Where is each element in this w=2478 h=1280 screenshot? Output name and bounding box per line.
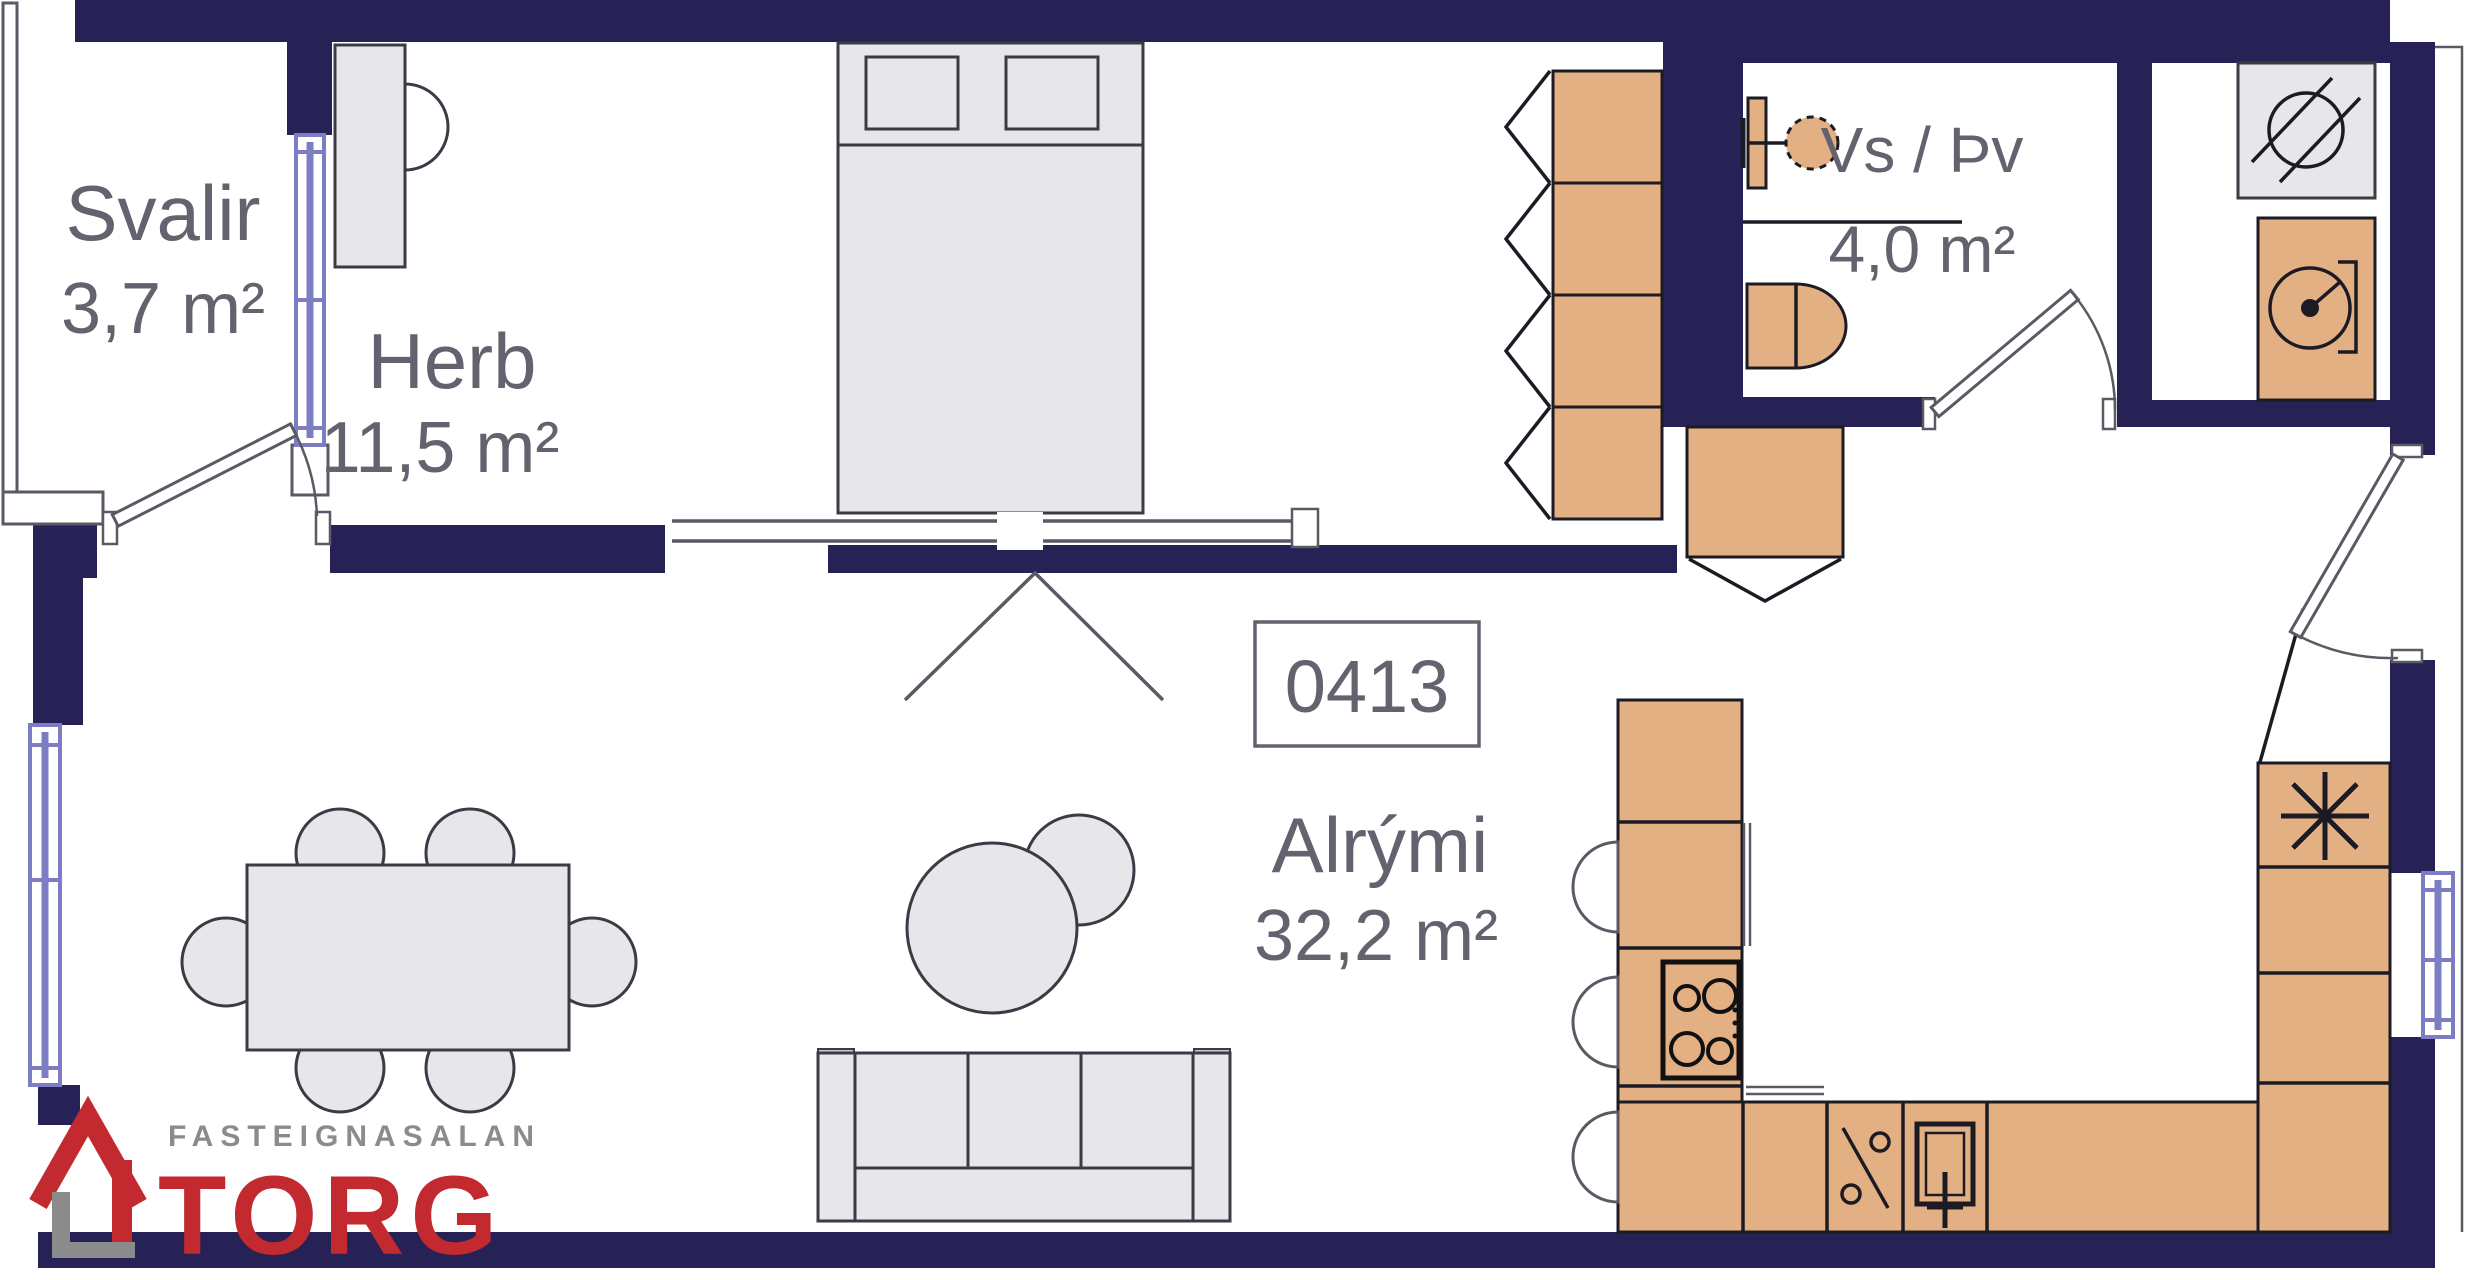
wardrobe: [1506, 71, 1662, 519]
wall-balcony-bedroom-post: [287, 0, 332, 135]
hall-cabinet-door-mark: [1689, 559, 1841, 601]
wardrobe-bifold-mark: [1506, 183, 1550, 295]
sofa-body: [818, 1053, 1230, 1221]
floor-plan-drawing: 0413 Svalir 3,7 m² Herb 11,5 m² Vs / Þv …: [0, 0, 2478, 1280]
stove-knob: [1733, 1034, 1738, 1039]
room-label-herb: Herb: [367, 317, 536, 405]
exterior-line-right: [2435, 47, 2462, 1232]
wardrobe-bifold-mark: [1506, 71, 1550, 183]
bed: [838, 43, 1143, 513]
dining-table: [247, 865, 569, 1050]
window-right-icon: [2423, 873, 2453, 1037]
room-area-vs-thv: 4,0 m²: [1828, 212, 2015, 286]
door-leaf: [1931, 290, 2078, 416]
logo: FASTEIGNASALAN TORG: [38, 1116, 541, 1278]
shower-tray: [2238, 63, 2375, 198]
logo-brand-text: TORG: [158, 1153, 504, 1278]
wall-bedroom-bottom-right: [828, 545, 1677, 573]
wall-top-right-thick: [1663, 42, 2390, 63]
dining-set: [182, 809, 636, 1112]
wall-bathroom-bottom: [1663, 397, 1935, 427]
coffee-table-large: [907, 843, 1077, 1013]
bed-pillow-right: [1006, 57, 1098, 129]
door-jamb: [2392, 650, 2422, 662]
stove-knob: [1733, 1021, 1738, 1026]
bar-stool: [1573, 842, 1618, 932]
door-swing-arc: [2295, 634, 2398, 658]
sliding-door-break: [997, 512, 1043, 550]
wardrobe-section: [1553, 407, 1662, 519]
door-jamb: [316, 512, 330, 544]
room-label-vs-thv: Vs / Þv: [1821, 114, 2024, 186]
room-area-alrymi: 32,2 m²: [1254, 896, 1498, 976]
wardrobe-section: [1553, 295, 1662, 407]
hall-cabinet: [1687, 427, 1843, 601]
wall-bedroom-bottom-left: [330, 525, 665, 573]
wardrobe-section: [1553, 71, 1662, 183]
wall-niche-bottom: [2152, 400, 2390, 427]
bedroom-cabinet: [335, 45, 405, 267]
sliding-door-jamb: [1292, 509, 1318, 547]
door-swing-arc: [2074, 295, 2115, 410]
logo-house-base: [52, 1242, 135, 1258]
wall-bathroom-niche: [2117, 42, 2152, 427]
wall-right-upper: [2390, 42, 2435, 455]
wall-left-upper: [33, 523, 97, 725]
bedroom-cabinet-door-arc: [405, 84, 448, 170]
wardrobe-bifold-mark: [1506, 407, 1550, 519]
wall-left-stub: [38, 1085, 80, 1125]
unit-number: 0413: [1255, 622, 1479, 746]
washing-machine: [2258, 218, 2375, 400]
door-leaf: [2290, 454, 2403, 638]
door-jamb: [2103, 399, 2115, 429]
entrance-door: [2290, 445, 2422, 662]
logo-tagline-text: FASTEIGNASALAN: [168, 1120, 541, 1153]
stove-burners-icon: [1663, 962, 1739, 1078]
bar-stool: [1573, 1112, 1618, 1202]
window-left-icon: [30, 725, 60, 1085]
room-label-svalir: Svalir: [65, 169, 260, 257]
furniture: [182, 43, 1230, 1221]
opening-indicator: [905, 573, 1163, 700]
wall-top: [75, 0, 2390, 42]
shower: [2238, 63, 2375, 198]
room-area-svalir: 3,7 m²: [61, 269, 265, 349]
logo-house-wall-right: [112, 1160, 132, 1242]
sofa: [818, 1049, 1230, 1221]
wall-bedroom-right: [1663, 42, 1743, 397]
bathroom-door: [1923, 290, 2115, 429]
floor-plan-page: 0413 Svalir 3,7 m² Herb 11,5 m² Vs / Þv …: [0, 0, 2478, 1280]
window-bedroom-icon: [296, 135, 324, 445]
door-leaf: [112, 424, 296, 526]
balcony-railing: [3, 3, 17, 523]
stove-knob: [1733, 1008, 1738, 1013]
balcony-slab-edge: [3, 492, 103, 524]
toilet-icon: [1747, 284, 1846, 368]
room-area-herb: 11,5 m²: [321, 408, 560, 488]
unit-number-text: 0413: [1285, 645, 1450, 728]
kitchen: [1573, 609, 2390, 1232]
hall-cabinet-body: [1687, 427, 1843, 557]
wardrobe-section: [1553, 183, 1662, 295]
bar-stool: [1573, 977, 1618, 1067]
wall-right-lower: [2390, 1037, 2435, 1232]
wall-right-mid: [2390, 660, 2435, 873]
door-jamb: [1923, 399, 1935, 429]
wardrobe-bifold-mark: [1506, 295, 1550, 407]
bed-pillow-left: [866, 57, 958, 129]
freezer-asterisk-icon: [2281, 772, 2369, 860]
room-label-alrymi: Alrými: [1272, 801, 1489, 889]
bedroom-sliding-door: [672, 509, 1318, 700]
